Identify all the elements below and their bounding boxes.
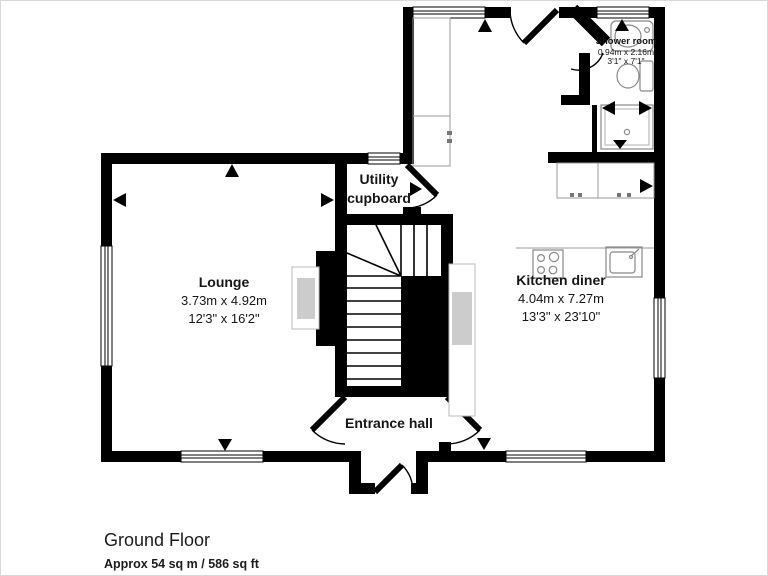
door-front-entrance [375, 465, 413, 492]
window-kitchen-top [413, 7, 485, 18]
floorplan-page: Lounge 3.73m x 4.92m 12'3" x 16'2" Kitch… [0, 0, 768, 576]
room-label-lounge: Lounge 3.73m x 4.92m 12'3" x 16'2" [124, 273, 324, 328]
cabinet-handle [447, 139, 452, 143]
room-name: Lounge [124, 273, 324, 292]
room-dimensions-imperial: 12'3" x 16'2" [124, 310, 324, 328]
room-name: Entrance hall [339, 414, 439, 433]
cabinet-handle [447, 131, 452, 135]
window-kitchen-bottom [506, 451, 586, 462]
arrow-down-icon [218, 439, 232, 451]
floor-title: Ground Floor [104, 528, 259, 552]
door-kitchen-back [510, 10, 557, 43]
arrow-up-icon [225, 164, 239, 177]
arrow-down-icon [477, 438, 491, 450]
room-dimensions-metric: 3.73m x 4.92m [124, 292, 324, 310]
room-label-shower-room: Shower room 0.94m x 2.16m 3'1" x 7'1" [586, 37, 666, 67]
porch-right-wall [416, 451, 428, 494]
room-label-utility-cupboard: Utility cupboard [331, 170, 427, 208]
kitchen-counter-left [413, 18, 450, 166]
cabinet-handle [627, 193, 631, 197]
kitchen-cabinets [557, 163, 654, 198]
footer: Ground Floor Approx 54 sq m / 586 sq ft [104, 528, 259, 573]
room-label-kitchen-diner: Kitchen diner 4.04m x 7.27m 13'3" x 23'1… [461, 271, 661, 326]
room-label-entrance-hall: Entrance hall [339, 414, 439, 433]
arrow-up-icon [478, 19, 492, 32]
room-name: Utility cupboard [331, 170, 427, 208]
window-utility-top [368, 153, 400, 164]
room-dimensions-imperial: 13'3" x 23'10" [461, 308, 661, 326]
window-lounge-bottom [181, 451, 263, 462]
cabinet-handle [617, 193, 621, 197]
room-name: Shower room [586, 37, 666, 48]
arrow-left-icon [113, 193, 126, 207]
cabinet-handle [578, 193, 582, 197]
window-lounge-left [101, 246, 112, 366]
window-shower-top [597, 7, 649, 18]
floor-area: Approx 54 sq m / 586 sq ft [104, 555, 259, 573]
room-dimensions-metric: 4.04m x 7.27m [461, 290, 661, 308]
room-name: Kitchen diner [461, 271, 661, 290]
cabinet-handle [570, 193, 574, 197]
arrow-right-icon [640, 179, 653, 193]
room-dimensions-imperial: 3'1" x 7'1" [586, 57, 666, 67]
